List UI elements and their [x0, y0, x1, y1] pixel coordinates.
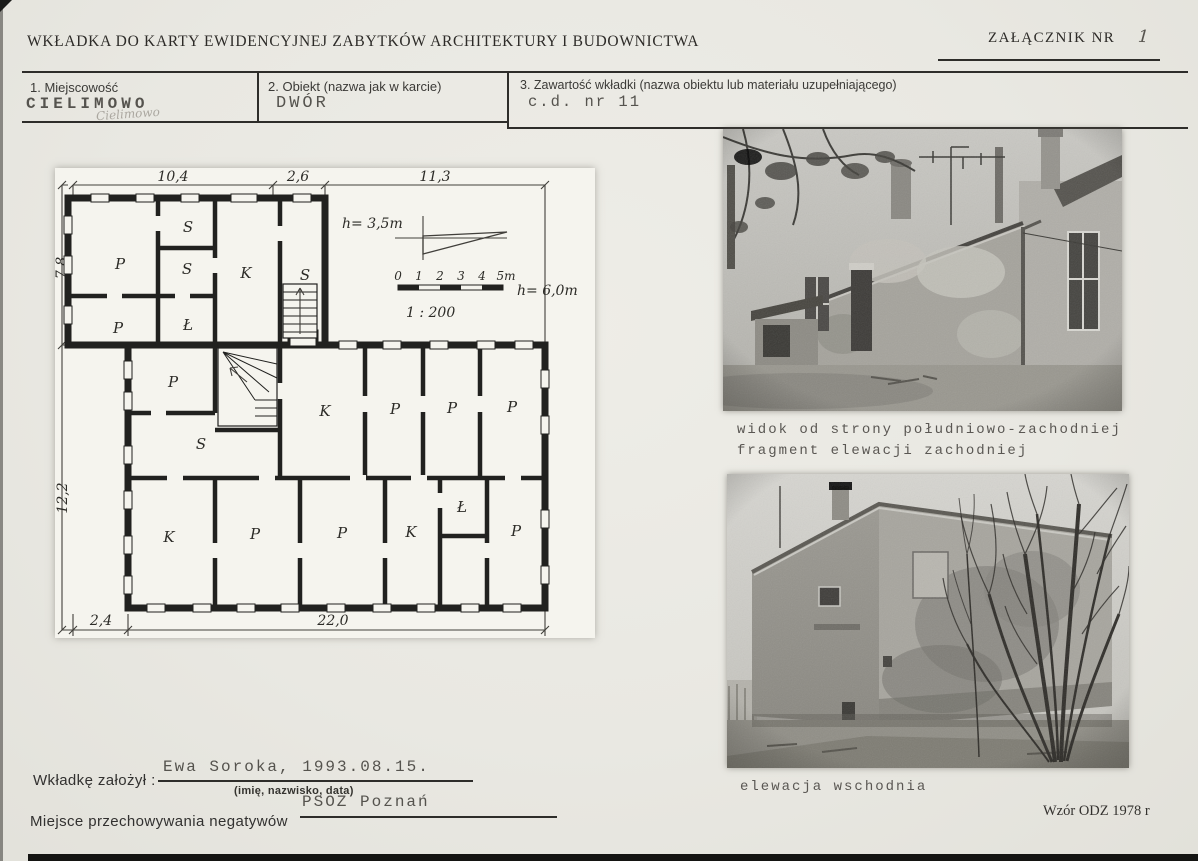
field-contents-value: c.d. nr 11: [528, 93, 641, 111]
scale-tick: 0: [394, 269, 402, 283]
room-label: S: [183, 218, 193, 236]
field-object-label: 2. Obiekt (nazwa jak w karcie): [268, 79, 441, 94]
dim-bottom-main: 22,0: [316, 613, 348, 629]
staircase-upper: [283, 284, 317, 338]
attachment-label: ZAŁĄCZNIK NR: [988, 30, 1115, 47]
window-marks: [64, 194, 549, 612]
height-note-lower: h= 6,0m: [517, 283, 578, 299]
dim-top-right: 11,3: [419, 169, 450, 185]
room-label: P: [446, 399, 458, 417]
height-note-upper: h= 3,5m: [342, 216, 403, 232]
field-contents-label: 3. Zawartość wkładki (nazwa obiektu lub …: [520, 78, 897, 92]
room-label: S: [300, 266, 310, 284]
room-label: K: [318, 402, 331, 420]
photo1-caption: widok od strony południowo-zachodniej fr…: [737, 420, 1122, 462]
photo1-caption-line2: fragment elewacji zachodniej: [737, 441, 1122, 462]
scale-bar: 0 1 2 3 4 5m 1 : 200: [394, 269, 515, 321]
negatives-value: PSOZ Poznań: [302, 793, 430, 811]
photo-south-west-view: [723, 129, 1122, 411]
north-arrow-icon: [395, 216, 507, 260]
scale-ratio: 1 : 200: [406, 305, 455, 321]
room-label: S: [196, 435, 206, 453]
scale-tick: 5m: [496, 269, 515, 283]
scan-edge-left: [0, 0, 3, 861]
scanned-heritage-card: WKŁADKA DO KARTY EWIDENCYJNEJ ZABYTKÓW A…: [0, 0, 1198, 861]
room-label: P: [506, 398, 518, 416]
photo-east-elevation: [727, 474, 1129, 768]
founder-underline: [158, 780, 473, 782]
room-label: P: [389, 400, 401, 418]
scale-tick: 1: [415, 269, 423, 283]
room-label: Ł: [182, 316, 193, 334]
fields-bottom-rule-left: [22, 121, 509, 123]
room-label: P: [112, 319, 124, 337]
outer-walls: [68, 198, 545, 608]
dim-top-left: 10,4: [157, 169, 188, 185]
room-label: K: [162, 528, 175, 546]
founder-value: Ewa Soroka, 1993.08.15.: [163, 758, 430, 776]
scale-tick: 3: [457, 269, 465, 283]
attachment-underline: [938, 59, 1160, 61]
room-label: P: [114, 255, 126, 273]
dim-bottom-left: 2,4: [89, 613, 112, 629]
room-label: P: [167, 373, 179, 391]
founder-label: Wkładkę założył :: [33, 772, 156, 789]
scan-corner-wedge: [0, 0, 12, 12]
fields-top-rule: [22, 71, 1188, 73]
fields-divider-1: [257, 71, 259, 123]
photo2-vignette: [727, 474, 1129, 768]
room-label: P: [510, 522, 522, 540]
photo2-caption-line1: elewacja wschodnia: [740, 777, 927, 798]
scale-tick: 2: [435, 269, 444, 283]
room-label: S: [182, 260, 192, 278]
scale-tick: 4: [477, 269, 486, 283]
negatives-label: Miejsce przechowywania negatywów: [30, 813, 288, 830]
staircase-lower: [218, 348, 277, 426]
field-place-label: 1. Miejscowość: [30, 80, 118, 95]
dim-top-mid: 2,6: [286, 169, 309, 185]
photo2-caption: elewacja wschodnia: [740, 777, 927, 798]
floor-plan: 10,4 2,6 11,3 7,8 12,2 2,4 22,0: [55, 168, 595, 638]
room-label: P: [249, 525, 261, 543]
attachment-number: 1: [1137, 27, 1149, 48]
photo1-caption-line1: widok od strony południowo-zachodniej: [737, 420, 1122, 441]
dim-left-lower: 12,2: [55, 482, 71, 513]
scan-edge-bottom: [28, 854, 1198, 861]
field-object-value: DWÓR: [276, 94, 329, 113]
form-note: Wzór ODZ 1978 r: [1043, 803, 1150, 820]
page-title: WKŁADKA DO KARTY EWIDENCYJNEJ ZABYTKÓW A…: [27, 33, 699, 51]
negatives-underline: [300, 816, 557, 818]
photo1-vignette: [723, 129, 1122, 411]
room-label: K: [404, 523, 417, 541]
interior-walls-lower: [128, 345, 545, 608]
room-label: Ł: [456, 498, 467, 516]
room-label: K: [239, 264, 252, 282]
room-label: P: [336, 524, 348, 542]
floor-plan-sheet: 10,4 2,6 11,3 7,8 12,2 2,4 22,0: [55, 168, 595, 638]
